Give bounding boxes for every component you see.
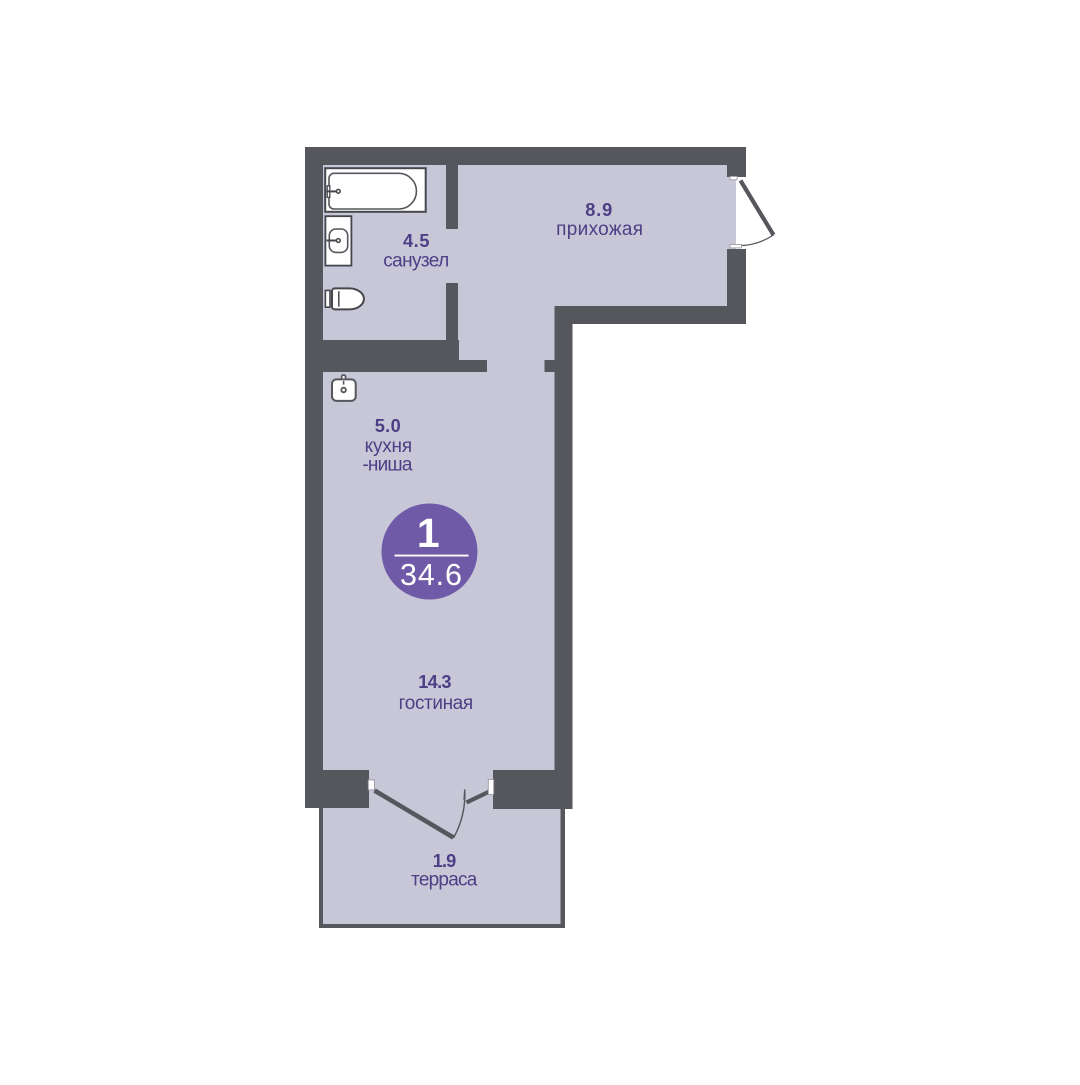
svg-text:1: 1 — [417, 510, 440, 556]
svg-text:14.3: 14.3 — [418, 672, 451, 692]
svg-text:34.6: 34.6 — [400, 558, 462, 592]
svg-text:санузел: санузел — [383, 251, 449, 272]
svg-text:прихожая: прихожая — [556, 219, 643, 240]
svg-text:-ниша: -ниша — [362, 455, 412, 476]
svg-text:8.9: 8.9 — [585, 200, 612, 220]
svg-text:гостиная: гостиная — [399, 693, 474, 714]
svg-text:4.5: 4.5 — [403, 231, 430, 251]
svg-text:терраса: терраса — [411, 870, 478, 891]
svg-text:5.0: 5.0 — [375, 416, 401, 436]
svg-text:1.9: 1.9 — [433, 851, 456, 871]
